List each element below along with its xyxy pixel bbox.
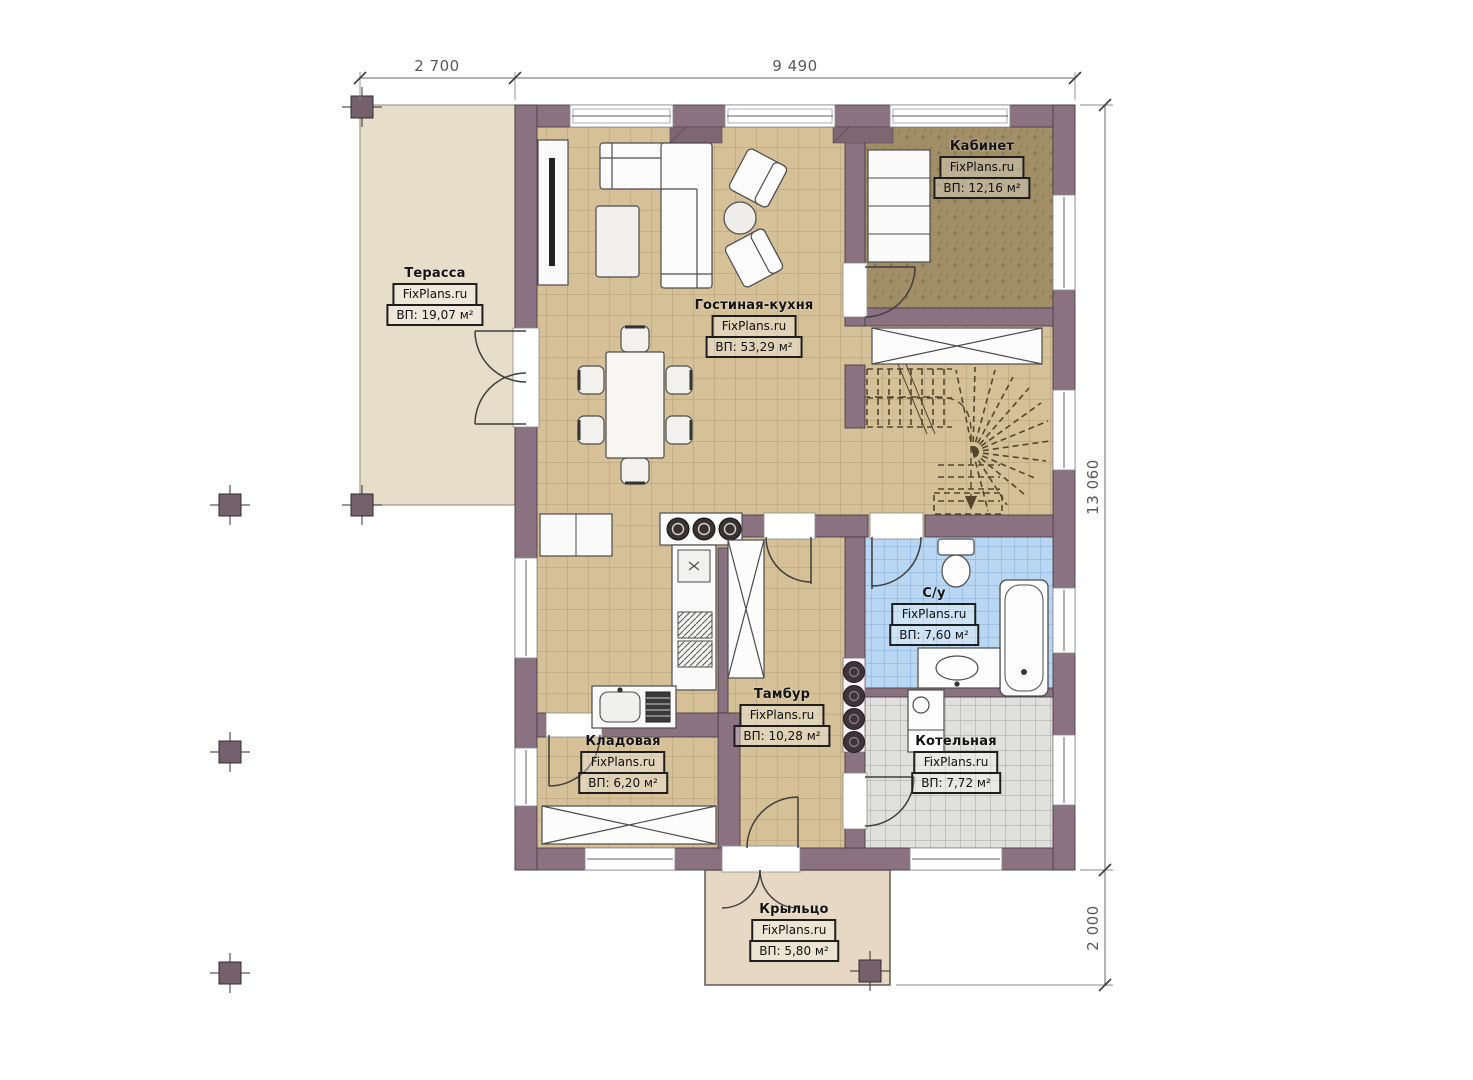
dining-chair — [578, 366, 604, 394]
floor-plan-drawing — [0, 0, 1473, 1080]
tv — [549, 158, 555, 266]
wardrobe-hall — [872, 328, 1042, 364]
brand-box: FixPlans.ru — [393, 283, 478, 306]
window-kitchen-left — [515, 558, 537, 658]
dining-chair — [621, 326, 649, 352]
dining-chair — [578, 416, 604, 444]
window-stairs-right — [1053, 390, 1075, 470]
tv-console — [538, 140, 568, 285]
room-label-vestibule: Тамбур FixPlans.ru ВП: 10,28 м² — [733, 687, 830, 747]
kitchen-sink — [592, 686, 676, 728]
area-box: ВП: 19,07 м² — [386, 304, 483, 327]
office-shelf — [868, 150, 930, 262]
dining-chair — [666, 366, 692, 394]
brand-box: FixPlans.ru — [752, 919, 837, 942]
window-bottom-1 — [585, 848, 675, 870]
coffee-table — [596, 206, 639, 277]
room-label-bathroom: С/у FixPlans.ru ВП: 7,60 м² — [889, 586, 979, 646]
room-name: С/у — [922, 586, 945, 601]
room-name: Котельная — [915, 734, 997, 749]
area-box: ВП: 7,60 м² — [889, 624, 979, 647]
dimension-top-right: 9 490 — [772, 57, 817, 75]
window-boiler-right — [1053, 735, 1075, 805]
wardrobe-vestibule — [728, 540, 764, 678]
oven — [678, 612, 712, 638]
cooktop-burners — [667, 518, 741, 540]
room-label-porch: Крыльцо FixPlans.ru ВП: 5,80 м² — [749, 902, 839, 962]
dishwasher — [678, 641, 712, 667]
dimension-right-main: 13 060 — [1084, 459, 1102, 515]
wardrobe-storage — [542, 806, 716, 844]
area-box: ВП: 6,20 м² — [578, 772, 668, 795]
window-bathroom-right — [1053, 588, 1075, 653]
room-label-boiler: Котельная FixPlans.ru ВП: 7,72 м² — [911, 734, 1001, 794]
area-box: ВП: 53,29 м² — [705, 336, 802, 359]
window-office-right — [1053, 195, 1075, 290]
column-marker — [210, 485, 250, 525]
dimension-top-left: 2 700 — [414, 57, 459, 75]
room-name: Кладовая — [585, 734, 660, 749]
area-box: ВП: 12,16 м² — [933, 177, 1030, 200]
room-label-living: Гостиная-кухня FixPlans.ru ВП: 53,29 м² — [695, 298, 814, 358]
area-box: ВП: 7,72 м² — [911, 772, 1001, 795]
dining-chair — [621, 458, 649, 484]
window-top-2 — [725, 105, 835, 127]
brand-box: FixPlans.ru — [914, 751, 999, 774]
room-name: Тамбур — [754, 687, 810, 702]
flue-pipes — [843, 658, 865, 753]
brand-box: FixPlans.ru — [740, 704, 825, 727]
vanity-sink — [918, 648, 1000, 688]
room-label-office: Кабинет FixPlans.ru ВП: 12,16 м² — [933, 139, 1030, 199]
dimension-right-porch: 2 000 — [1084, 905, 1102, 950]
brand-box: FixPlans.ru — [940, 156, 1025, 179]
room-name: Крыльцо — [759, 902, 828, 917]
dining-chair — [666, 416, 692, 444]
room-name: Терасса — [404, 266, 465, 281]
area-box: ВП: 5,80 м² — [749, 940, 839, 963]
dining-table — [606, 352, 664, 458]
window-storage-left — [515, 748, 537, 806]
column-marker — [210, 732, 250, 772]
room-label-terrace: Терасса FixPlans.ru ВП: 19,07 м² — [386, 266, 483, 326]
brand-box: FixPlans.ru — [712, 315, 797, 338]
bathtub — [1000, 580, 1048, 696]
room-label-storage: Кладовая FixPlans.ru ВП: 6,20 м² — [578, 734, 668, 794]
floor-plan: 2 700 9 490 13 060 2 000 Терасса FixPlan… — [0, 0, 1473, 1080]
area-box: ВП: 10,28 м² — [733, 725, 830, 748]
window-top-3 — [890, 105, 1010, 127]
window-top-1 — [570, 105, 673, 127]
round-table — [724, 202, 756, 234]
brand-box: FixPlans.ru — [892, 603, 977, 626]
room-name: Гостиная-кухня — [695, 298, 814, 313]
column-marker — [210, 953, 250, 993]
brand-box: FixPlans.ru — [581, 751, 666, 774]
window-boiler-bottom — [910, 848, 1002, 870]
room-name: Кабинет — [950, 139, 1014, 154]
